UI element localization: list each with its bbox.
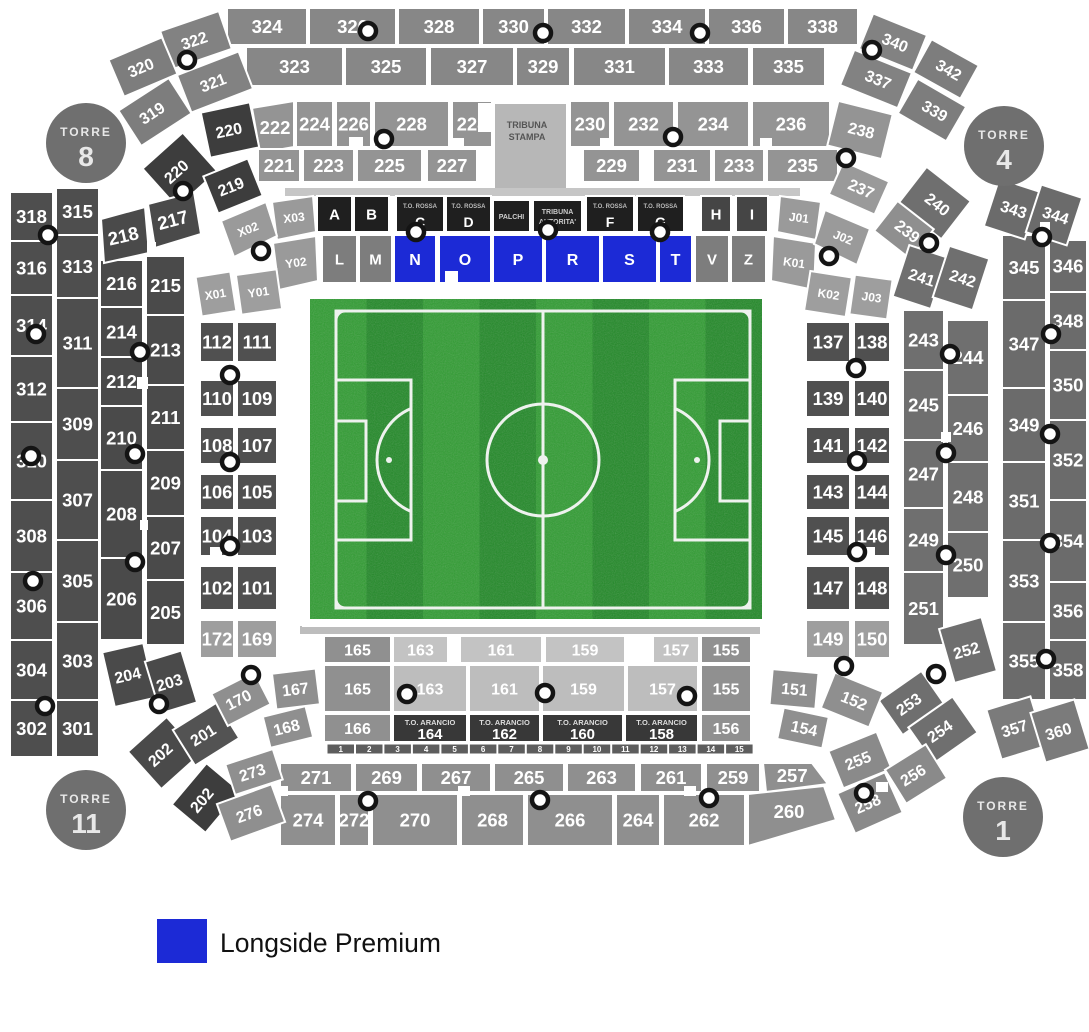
svg-text:323: 323 (279, 56, 310, 77)
svg-text:172: 172 (202, 629, 233, 650)
svg-text:1: 1 (338, 745, 343, 754)
svg-text:236: 236 (776, 114, 807, 135)
svg-text:PALCHI: PALCHI (499, 214, 525, 221)
svg-text:228: 228 (396, 114, 427, 135)
svg-text:149: 149 (813, 629, 844, 650)
svg-text:O: O (459, 252, 471, 269)
svg-text:211: 211 (151, 407, 181, 428)
svg-text:274: 274 (293, 810, 325, 831)
svg-text:F: F (606, 214, 615, 230)
svg-text:143: 143 (813, 482, 844, 503)
svg-text:330: 330 (498, 16, 529, 37)
svg-text:356: 356 (1053, 601, 1084, 622)
svg-text:S: S (624, 252, 635, 269)
svg-text:145: 145 (813, 526, 844, 547)
svg-text:207: 207 (150, 538, 181, 559)
svg-text:165: 165 (344, 642, 371, 659)
svg-text:355: 355 (1009, 651, 1040, 672)
svg-text:245: 245 (908, 395, 939, 416)
svg-text:102: 102 (202, 578, 233, 599)
svg-text:161: 161 (491, 681, 518, 698)
svg-text:8: 8 (78, 141, 94, 172)
svg-text:272: 272 (339, 810, 370, 831)
svg-text:163: 163 (417, 681, 444, 698)
svg-text:232: 232 (628, 114, 659, 135)
svg-text:112: 112 (202, 332, 232, 353)
svg-text:318: 318 (16, 206, 47, 227)
svg-text:250: 250 (953, 555, 984, 576)
svg-text:110: 110 (202, 388, 232, 409)
svg-text:4: 4 (996, 144, 1012, 175)
svg-text:N: N (409, 252, 421, 269)
svg-text:V: V (707, 251, 717, 268)
svg-text:1: 1 (995, 815, 1011, 846)
svg-text:266: 266 (555, 810, 586, 831)
svg-text:139: 139 (813, 388, 844, 409)
svg-text:209: 209 (150, 473, 181, 494)
svg-text:161: 161 (488, 642, 515, 659)
svg-text:169: 169 (242, 629, 273, 650)
svg-text:222: 222 (260, 117, 291, 138)
svg-text:233: 233 (724, 155, 755, 176)
svg-text:T.O. ROSSA: T.O. ROSSA (451, 204, 486, 210)
svg-text:269: 269 (371, 767, 402, 788)
svg-text:Longside Premium: Longside Premium (220, 928, 441, 958)
svg-text:324: 324 (252, 16, 284, 37)
svg-text:334: 334 (652, 16, 684, 37)
svg-text:Y02: Y02 (284, 254, 307, 271)
svg-text:316: 316 (16, 258, 47, 279)
svg-text:TORRE: TORRE (978, 128, 1030, 142)
svg-text:156: 156 (713, 721, 740, 738)
svg-text:T.O. ROSSA: T.O. ROSSA (643, 204, 678, 210)
svg-text:148: 148 (857, 578, 888, 599)
svg-text:331: 331 (604, 56, 635, 77)
svg-text:106: 106 (202, 482, 233, 503)
svg-text:164: 164 (417, 726, 443, 743)
svg-text:307: 307 (62, 490, 93, 511)
svg-text:155: 155 (713, 642, 740, 659)
svg-text:T.O. ROSSA: T.O. ROSSA (403, 204, 438, 210)
svg-text:208: 208 (106, 504, 137, 525)
svg-text:229: 229 (596, 155, 627, 176)
svg-text:Y01: Y01 (247, 284, 270, 301)
svg-text:140: 140 (857, 388, 888, 409)
svg-text:268: 268 (477, 810, 508, 831)
svg-text:TORRE: TORRE (60, 792, 112, 806)
svg-text:137: 137 (813, 332, 844, 353)
svg-text:248: 248 (953, 487, 984, 508)
svg-text:352: 352 (1053, 450, 1084, 471)
svg-text:13: 13 (678, 745, 687, 754)
svg-text:TORRE: TORRE (60, 125, 112, 139)
svg-text:259: 259 (718, 767, 749, 788)
svg-text:TRIBUNA: TRIBUNA (542, 209, 574, 216)
svg-text:224: 224 (299, 114, 331, 135)
svg-text:12: 12 (649, 745, 658, 754)
svg-text:247: 247 (908, 464, 939, 485)
svg-text:107: 107 (242, 435, 273, 456)
svg-text:225: 225 (374, 155, 405, 176)
svg-text:235: 235 (787, 155, 818, 176)
svg-text:267: 267 (441, 767, 472, 788)
svg-text:TRIBUNA: TRIBUNA (507, 120, 548, 130)
svg-text:5: 5 (452, 745, 457, 754)
svg-text:336: 336 (731, 16, 762, 37)
svg-text:151: 151 (780, 681, 808, 700)
svg-text:T.O. ROSSA: T.O. ROSSA (593, 204, 628, 210)
svg-text:302: 302 (16, 718, 47, 739)
svg-text:257: 257 (777, 765, 808, 786)
svg-text:109: 109 (242, 388, 273, 409)
svg-text:347: 347 (1009, 334, 1040, 355)
svg-text:11: 11 (71, 808, 101, 839)
svg-text:10: 10 (592, 745, 601, 754)
svg-text:206: 206 (106, 589, 137, 610)
svg-text:349: 349 (1009, 415, 1040, 436)
svg-text:147: 147 (813, 578, 844, 599)
svg-text:231: 231 (667, 155, 698, 176)
svg-text:15: 15 (735, 745, 744, 754)
svg-text:265: 265 (514, 767, 545, 788)
svg-text:227: 227 (437, 155, 468, 176)
svg-text:216: 216 (106, 273, 137, 294)
svg-text:103: 103 (242, 526, 273, 547)
svg-text:249: 249 (908, 530, 939, 551)
svg-text:313: 313 (62, 256, 93, 277)
svg-text:158: 158 (649, 726, 674, 743)
svg-text:157: 157 (663, 642, 690, 659)
svg-text:Z: Z (744, 251, 753, 268)
svg-text:230: 230 (575, 114, 606, 135)
svg-text:A: A (329, 206, 340, 223)
svg-text:346: 346 (1053, 256, 1084, 277)
svg-text:325: 325 (371, 56, 402, 77)
svg-text:221: 221 (264, 155, 295, 176)
svg-text:B: B (366, 206, 377, 223)
svg-text:144: 144 (857, 482, 889, 503)
svg-text:8: 8 (538, 745, 543, 754)
svg-text:P: P (513, 252, 524, 269)
svg-text:D: D (463, 214, 473, 230)
svg-text:I: I (750, 206, 754, 223)
svg-text:H: H (711, 206, 722, 223)
svg-text:312: 312 (16, 379, 47, 400)
svg-text:215: 215 (150, 275, 181, 296)
svg-text:101: 101 (242, 578, 273, 599)
svg-text:J01: J01 (788, 210, 810, 226)
svg-text:STAMPA: STAMPA (509, 132, 546, 142)
svg-text:333: 333 (693, 56, 724, 77)
svg-text:328: 328 (424, 16, 455, 37)
svg-text:167: 167 (281, 680, 310, 700)
svg-text:308: 308 (16, 526, 47, 547)
svg-text:X03: X03 (283, 210, 306, 227)
svg-text:306: 306 (16, 596, 47, 617)
svg-text:243: 243 (908, 330, 939, 351)
svg-text:166: 166 (344, 721, 371, 738)
svg-text:309: 309 (62, 414, 93, 435)
svg-text:263: 263 (586, 767, 617, 788)
svg-text:311: 311 (63, 333, 93, 354)
svg-text:11: 11 (621, 745, 630, 754)
svg-text:305: 305 (62, 571, 93, 592)
svg-text:150: 150 (857, 629, 888, 650)
svg-text:T: T (671, 252, 681, 269)
svg-text:234: 234 (698, 114, 730, 135)
svg-text:L: L (335, 251, 344, 268)
svg-text:138: 138 (857, 332, 888, 353)
svg-text:332: 332 (571, 16, 602, 37)
svg-text:304: 304 (16, 660, 48, 681)
svg-text:327: 327 (457, 56, 488, 77)
svg-text:141: 141 (813, 435, 844, 456)
svg-text:163: 163 (407, 642, 434, 659)
svg-text:111: 111 (243, 332, 272, 353)
svg-text:303: 303 (62, 651, 93, 672)
svg-text:14: 14 (706, 745, 715, 754)
svg-text:213: 213 (150, 340, 181, 361)
svg-text:3: 3 (395, 745, 400, 754)
svg-text:350: 350 (1053, 375, 1084, 396)
svg-text:155: 155 (713, 681, 740, 698)
svg-text:M: M (369, 251, 382, 268)
svg-text:J03: J03 (861, 289, 883, 306)
svg-text:9: 9 (566, 745, 571, 754)
svg-text:338: 338 (807, 16, 838, 37)
svg-text:351: 351 (1009, 491, 1040, 512)
svg-text:R: R (567, 252, 579, 269)
svg-text:358: 358 (1053, 660, 1084, 681)
svg-text:205: 205 (150, 602, 181, 623)
svg-text:159: 159 (570, 681, 597, 698)
svg-text:264: 264 (623, 810, 655, 831)
svg-text:4: 4 (424, 745, 429, 754)
svg-text:226: 226 (338, 114, 369, 135)
svg-text:162: 162 (492, 726, 517, 743)
svg-text:262: 262 (689, 810, 720, 831)
svg-text:345: 345 (1009, 257, 1040, 278)
svg-text:223: 223 (313, 155, 344, 176)
svg-text:251: 251 (908, 598, 939, 619)
svg-text:105: 105 (242, 482, 273, 503)
svg-text:271: 271 (301, 767, 332, 788)
svg-text:329: 329 (528, 56, 559, 77)
svg-text:TORRE: TORRE (977, 799, 1029, 813)
svg-text:301: 301 (62, 718, 93, 739)
svg-text:212: 212 (106, 371, 137, 392)
svg-text:261: 261 (656, 767, 687, 788)
svg-text:165: 165 (344, 681, 371, 698)
svg-text:159: 159 (572, 642, 599, 659)
svg-text:7: 7 (509, 745, 514, 754)
svg-text:353: 353 (1009, 571, 1040, 592)
svg-text:335: 335 (773, 56, 804, 77)
svg-text:2: 2 (367, 745, 372, 754)
svg-text:214: 214 (106, 322, 138, 343)
svg-text:6: 6 (481, 745, 486, 754)
svg-text:160: 160 (570, 726, 595, 743)
svg-text:315: 315 (62, 201, 93, 222)
svg-text:270: 270 (400, 810, 431, 831)
svg-text:157: 157 (649, 681, 676, 698)
svg-text:246: 246 (953, 418, 984, 439)
svg-text:260: 260 (774, 801, 805, 822)
